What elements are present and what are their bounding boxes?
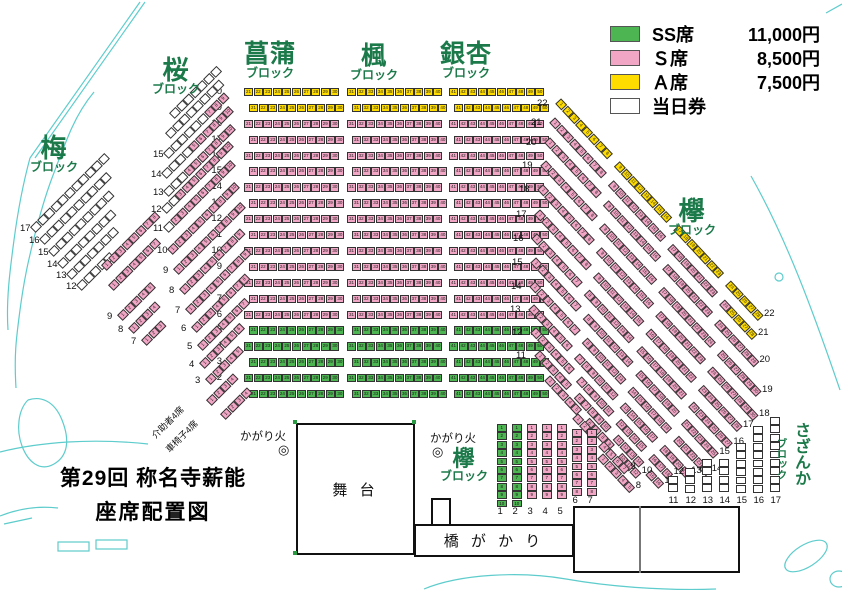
seat: 30 [335, 263, 344, 271]
seat [719, 476, 729, 484]
seat: 24 [273, 88, 282, 96]
seat: 45 [492, 104, 501, 112]
seat: 37 [410, 263, 419, 271]
seat: 47 [507, 374, 516, 382]
seat: 29 [326, 136, 335, 144]
seat: 41 [449, 88, 458, 96]
seat: 30 [335, 295, 344, 303]
seat: 31 [352, 231, 361, 239]
seat-row-kaede-17: 31323334353637383940 [352, 136, 448, 144]
seat: 28 [316, 167, 325, 175]
seat: 22 [259, 263, 268, 271]
row-number: 20 [760, 355, 771, 364]
seat: 35 [385, 88, 394, 96]
seat: 27 [307, 295, 316, 303]
seat [685, 485, 695, 493]
seat: 23 [263, 279, 272, 287]
seat: 32 [357, 279, 366, 287]
seat: 26 [292, 374, 301, 382]
seat: 25 [282, 374, 291, 382]
seat: 24 [278, 390, 287, 398]
seat: 38 [419, 326, 428, 334]
row-number: 8 [169, 286, 174, 295]
seat: 43 [473, 295, 482, 303]
seat: 22 [259, 167, 268, 175]
seat: 30 [330, 215, 339, 223]
seat: 50 [535, 374, 544, 382]
seat: 31 [347, 374, 356, 382]
row-number: 1 [498, 507, 503, 516]
seat: 44 [478, 311, 487, 319]
seat: 21 [244, 88, 253, 96]
seat: 43 [468, 247, 477, 255]
seat: 44 [483, 358, 492, 366]
seat: 25 [287, 263, 296, 271]
seat: 45 [492, 390, 501, 398]
legend-item-a: Ａ席 7,500円 [610, 70, 820, 94]
seat: 8 [527, 483, 537, 491]
seat: 21 [249, 231, 258, 239]
seat: 21 [244, 183, 253, 191]
seat: 46 [497, 311, 506, 319]
seat: 34 [381, 295, 390, 303]
seat: 36 [395, 374, 404, 382]
seat: 31 [347, 311, 356, 319]
seat: 40 [438, 104, 447, 112]
seat: 38 [414, 374, 423, 382]
ss-color-swatch [610, 26, 640, 42]
row-number: 10 [642, 466, 653, 475]
block-label-ume: 梅 ブロック [30, 135, 78, 173]
seat: 22 [254, 183, 263, 191]
seat: 35 [390, 326, 399, 334]
seat-column-keyaki_front-3: 123456789 [527, 424, 537, 500]
seat-row-shobu-14: 21222324252627282930 [244, 183, 340, 191]
seat [770, 417, 780, 425]
seat [719, 459, 729, 467]
row-number: 16 [513, 234, 524, 243]
seat: 36 [400, 231, 409, 239]
seat: 40 [438, 326, 447, 334]
seat: 5 [527, 458, 537, 466]
seat: 30 [335, 167, 344, 175]
seat: 9 [512, 491, 522, 499]
seat: 35 [390, 358, 399, 366]
seat-row-shobu-19: 21222324252627282930 [249, 104, 345, 112]
seat: 29 [326, 199, 335, 207]
row-number: 15 [719, 447, 730, 456]
seat: 24 [278, 167, 287, 175]
seat-row-kaede-15: 31323334353637383940 [352, 167, 448, 175]
seat: 46 [497, 247, 506, 255]
seat: 23 [263, 215, 272, 223]
seat: 2 [497, 432, 507, 440]
seat-column-keyaki_front-4: 123456789 [542, 424, 552, 500]
seat [753, 434, 763, 442]
seat: 23 [268, 263, 277, 271]
row-number: 13 [703, 496, 714, 505]
seat: 28 [311, 247, 320, 255]
seat: 33 [366, 183, 375, 191]
seat: 33 [371, 358, 380, 366]
seat: 26 [292, 88, 301, 96]
seat: 32 [357, 342, 366, 350]
seat-row-kaede-10: 31323334353637383940 [347, 247, 443, 255]
seat: 27 [307, 326, 316, 334]
seat: 31 [352, 167, 361, 175]
seat: 43 [468, 183, 477, 191]
seat: 39 [429, 104, 438, 112]
seat: 25 [287, 295, 296, 303]
seat: 29 [326, 326, 335, 334]
seat: 31 [352, 199, 361, 207]
seat-row-kaede-7: 31323334353637383940 [352, 295, 448, 303]
seat [753, 476, 763, 484]
bonfire-left-icon: ◎ [278, 442, 289, 458]
seat-column-keyaki_front-5: 123456789 [557, 424, 567, 500]
seat: 22 [254, 247, 263, 255]
stage-step [431, 498, 451, 526]
seat: 46 [502, 326, 511, 334]
seat: 41 [454, 295, 463, 303]
seat: 49 [531, 390, 540, 398]
seat: 7 [542, 474, 552, 482]
seat: 26 [297, 104, 306, 112]
seat: 34 [376, 183, 385, 191]
seat: 23 [263, 247, 272, 255]
seat: 37 [405, 311, 414, 319]
seat: 22 [254, 152, 263, 160]
seat: 30 [335, 326, 344, 334]
seat: 44 [483, 231, 492, 239]
seat: 37 [405, 342, 414, 350]
seat: 30 [335, 136, 344, 144]
seat: 29 [326, 104, 335, 112]
seat: 24 [273, 120, 282, 128]
seat: 24 [278, 295, 287, 303]
seat: 27 [302, 215, 311, 223]
seat: 32 [357, 215, 366, 223]
seat: 43 [468, 374, 477, 382]
seat: 47 [512, 167, 521, 175]
seat: 25 [287, 167, 296, 175]
seat: 36 [395, 152, 404, 160]
seat: 44 [478, 279, 487, 287]
row-number: 12 [686, 496, 697, 505]
seat: 7 [572, 479, 582, 487]
event-title: 第29回 称名寺薪能 [38, 462, 268, 492]
seat: 30 [330, 279, 339, 287]
seat: 44 [483, 326, 492, 334]
seat: 21 [244, 120, 253, 128]
seat: 32 [357, 183, 366, 191]
seat: 7 [557, 474, 567, 482]
seat: 28 [316, 104, 325, 112]
seat: 38 [419, 390, 428, 398]
seat: 25 [287, 358, 296, 366]
seat: 43 [468, 215, 477, 223]
row-number: 14 [151, 170, 162, 179]
seat: 42 [464, 358, 473, 366]
seat: 22 [254, 342, 263, 350]
seat: 43 [468, 342, 477, 350]
seat: 32 [362, 199, 371, 207]
row-number: 11 [153, 224, 163, 233]
seat: 32 [362, 358, 371, 366]
row-number: 16 [29, 236, 40, 245]
seat: 23 [263, 183, 272, 191]
seat: 33 [366, 247, 375, 255]
seat-column-keyaki_front-2: 12345678910 [512, 424, 522, 508]
seat: 29 [321, 183, 330, 191]
seat: 44 [483, 167, 492, 175]
seat: 33 [366, 88, 375, 96]
seat: 26 [292, 311, 301, 319]
seat: 45 [487, 279, 496, 287]
seat: 5 [512, 458, 522, 466]
seat: 35 [385, 120, 394, 128]
row-number: 5 [558, 507, 563, 516]
seat: 23 [268, 358, 277, 366]
seat: 39 [424, 88, 433, 96]
seat: 26 [292, 183, 301, 191]
seat: 26 [297, 231, 306, 239]
seat: 3 [497, 441, 507, 449]
seat: 23 [268, 199, 277, 207]
seat: 45 [487, 374, 496, 382]
seat: 47 [512, 295, 521, 303]
seat: 47 [512, 199, 521, 207]
seat: 42 [459, 183, 468, 191]
seat: 29 [321, 152, 330, 160]
seat [685, 476, 695, 484]
seat: 39 [429, 295, 438, 303]
seat: 25 [282, 120, 291, 128]
seat: 25 [282, 279, 291, 287]
seat: 6 [557, 466, 567, 474]
seat: 21 [249, 136, 258, 144]
seat: 31 [347, 120, 356, 128]
seat: 33 [371, 104, 380, 112]
seat: 27 [307, 231, 316, 239]
legend-item-ss: SS席 11,000円 [610, 22, 820, 46]
seat: 7 [527, 474, 537, 482]
seat-row-kaede-8: 31323334353637383940 [347, 279, 443, 287]
seat: 31 [352, 326, 361, 334]
seat: 25 [287, 199, 296, 207]
seat: 33 [366, 215, 375, 223]
seat: 43 [473, 199, 482, 207]
seat: 39 [424, 342, 433, 350]
seat: 45 [487, 183, 496, 191]
seat: 1 [557, 424, 567, 432]
seat-row-shobu-1: 21222324252627282930 [249, 390, 345, 398]
seat: 30 [335, 390, 344, 398]
seat: 46 [502, 295, 511, 303]
seat: 39 [429, 199, 438, 207]
seat: 34 [376, 374, 385, 382]
row-number: 11 [669, 496, 679, 505]
backstage-building [573, 506, 740, 573]
seat-row-kaede-3: 31323334353637383940 [352, 358, 448, 366]
seat: 21 [249, 358, 258, 366]
seat: 2 [512, 432, 522, 440]
seat: 35 [385, 215, 394, 223]
row-number: 13 [56, 271, 67, 280]
seat: 2 [542, 432, 552, 440]
seat: 25 [282, 247, 291, 255]
seat: 39 [424, 215, 433, 223]
seat: 40 [438, 199, 447, 207]
seat: 40 [438, 358, 447, 366]
seat: 31 [347, 279, 356, 287]
seat: 23 [268, 390, 277, 398]
seat: 31 [352, 390, 361, 398]
seat: 5 [587, 463, 597, 471]
seat: 38 [419, 199, 428, 207]
seat: 46 [497, 183, 506, 191]
seat: 26 [297, 390, 306, 398]
seat: 26 [297, 167, 306, 175]
seat: 30 [330, 342, 339, 350]
seat: 44 [483, 295, 492, 303]
seat: 48 [516, 247, 525, 255]
a-color-swatch [610, 74, 640, 90]
seat: 36 [395, 279, 404, 287]
seat: 45 [492, 167, 501, 175]
block-label-shobu: 菖蒲 ブロック [244, 42, 296, 79]
seat [753, 443, 763, 451]
seat: 32 [362, 231, 371, 239]
seat: 8 [542, 483, 552, 491]
row-number: 8 [118, 325, 123, 334]
seat: 25 [282, 215, 291, 223]
seat: 35 [390, 295, 399, 303]
seat-row-shobu-8: 21222324252627282930 [244, 279, 340, 287]
seat: 43 [468, 152, 477, 160]
seat: 22 [254, 120, 263, 128]
block-label-kaede: 楓 ブロック [350, 44, 398, 81]
seat: 31 [352, 263, 361, 271]
row-number: 7 [175, 306, 180, 315]
seat: 28 [311, 342, 320, 350]
seat: 39 [429, 231, 438, 239]
seat: 24 [273, 152, 282, 160]
seat: 24 [273, 247, 282, 255]
seat [753, 426, 763, 434]
seat [770, 484, 780, 492]
seat: 24 [278, 199, 287, 207]
seat: 23 [268, 295, 277, 303]
seat: 46 [497, 88, 506, 96]
seat: 35 [390, 136, 399, 144]
seat: 48 [516, 374, 525, 382]
seat: 46 [502, 263, 511, 271]
seating-chart-page: 2122232425262728293031323334353637383940… [0, 0, 842, 595]
seat-column-keyaki_front-6: 12345678 [572, 429, 582, 496]
seat-row-icho-15: 41424344454647484950 [454, 167, 550, 175]
seat-row-shobu-9: 21222324252627282930 [249, 263, 345, 271]
seat-row-icho-3: 41424344454647484950 [454, 358, 550, 366]
seat: 29 [321, 311, 330, 319]
seat: 42 [464, 167, 473, 175]
seat: 29 [321, 120, 330, 128]
seat: 40 [433, 342, 442, 350]
seat: 49 [531, 199, 540, 207]
seat: 29 [326, 295, 335, 303]
seat: 41 [454, 199, 463, 207]
seat: 47 [512, 104, 521, 112]
seat: 28 [311, 88, 320, 96]
block-label-sazanka: さざんか [792, 422, 808, 486]
seat: 31 [347, 183, 356, 191]
seat: 28 [311, 120, 320, 128]
seat: 5 [497, 458, 507, 466]
row-number: 13 [153, 188, 164, 197]
seat: 40 [433, 152, 442, 160]
seat: 49 [526, 88, 535, 96]
seat-row-kaede-16: 31323334353637383940 [347, 152, 443, 160]
seat-row-shobu-16: 21222324252627282930 [244, 152, 340, 160]
seat: 36 [400, 199, 409, 207]
seat: 40 [438, 390, 447, 398]
seat: 44 [483, 263, 492, 271]
seat: 46 [502, 167, 511, 175]
seat: 21 [244, 152, 253, 160]
seat: 33 [366, 374, 375, 382]
seat-row-icho-19: 41424344454647484950 [454, 104, 550, 112]
seat-row-kaede-19: 31323334353637383940 [352, 104, 448, 112]
seat: 26 [297, 199, 306, 207]
seat: 38 [414, 279, 423, 287]
seat: 29 [321, 374, 330, 382]
seat: 4 [572, 454, 582, 462]
seat: 41 [449, 374, 458, 382]
seat [702, 459, 712, 467]
seat-column-sazanka-11 [668, 476, 678, 493]
seat [753, 451, 763, 459]
seat: 7 [587, 479, 597, 487]
seat: 1 [527, 424, 537, 432]
seat [685, 468, 695, 476]
seat: 35 [385, 279, 394, 287]
seat: 39 [429, 263, 438, 271]
seat: 47 [512, 136, 521, 144]
stage-label: 舞 台 [332, 479, 378, 500]
seat: 35 [385, 311, 394, 319]
seat: 39 [424, 279, 433, 287]
seat-row-icho-20: 41424344454647484950 [449, 88, 545, 96]
seat: 35 [390, 390, 399, 398]
row-number: 14 [720, 496, 731, 505]
seat-row-kaede-4: 31323334353637383940 [347, 342, 443, 350]
seat: 46 [502, 199, 511, 207]
block-label-keyaki-front: 欅 ブロック [440, 448, 488, 482]
seat: 44 [478, 247, 487, 255]
seat: 24 [278, 136, 287, 144]
row-number: 17 [771, 496, 782, 505]
seat: 43 [473, 104, 482, 112]
seat: 30 [330, 183, 339, 191]
seat: 24 [273, 342, 282, 350]
seat: 4 [542, 449, 552, 457]
seat: 9 [557, 491, 567, 499]
seat: 43 [473, 136, 482, 144]
seat: 39 [429, 390, 438, 398]
seat: 41 [449, 247, 458, 255]
seat: 21 [244, 215, 253, 223]
seat: 25 [282, 183, 291, 191]
